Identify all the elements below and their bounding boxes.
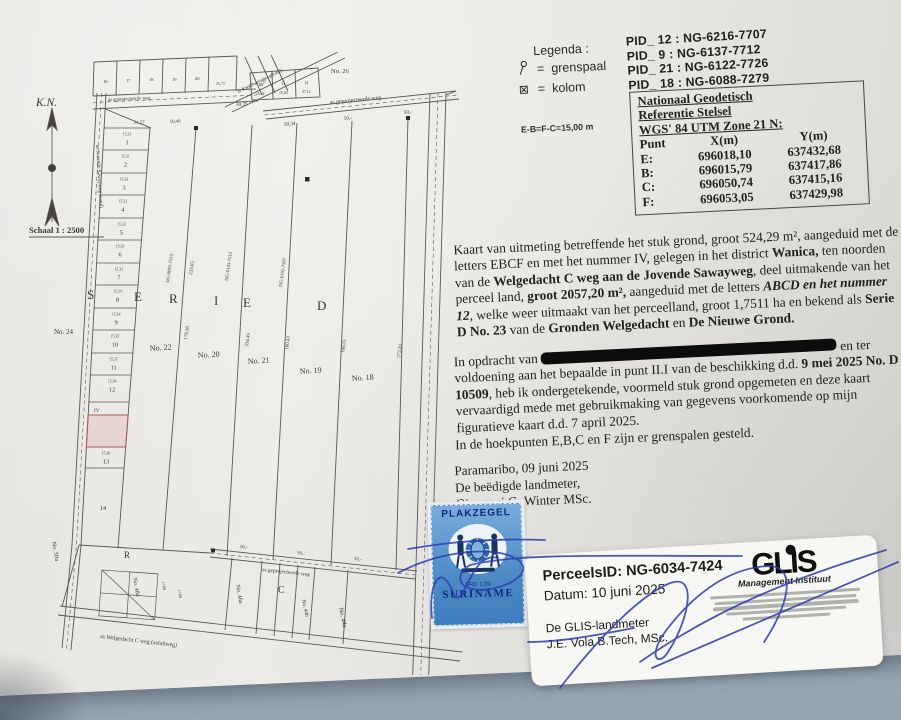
road-label-geprojecteerde-top-left: as geprojecteerde weg [108, 96, 151, 103]
big-letter: D [317, 298, 326, 313]
dimension-label: 15,34 [112, 313, 121, 318]
parcel-label-no24: No. 24 [54, 328, 74, 336]
cell-punt: F: [642, 193, 679, 209]
dimension-label: 16,02 [256, 92, 265, 97]
dimension-label: 50,- [404, 109, 413, 116]
dimension-label: 15,33 [116, 245, 125, 250]
parcel-number: 12 [109, 387, 115, 394]
parcel-number: 8 [116, 297, 119, 304]
cell-y: 637429,98 [775, 185, 858, 203]
dimension-label: 15,36 [108, 380, 117, 385]
dimension-label: 15,35 [109, 358, 118, 363]
big-letter: I [214, 293, 218, 308]
bottom-label: C [278, 585, 285, 596]
coordinate-table: Nationaal Geodetisch Referentie Stelsel … [629, 80, 870, 216]
plakzegel-stamp: PLAKZEGEL SRD 1,00 SURINAME [427, 500, 528, 630]
pid-list: PID_ 12 : NG-6216-7707 PID_ 9 : NG-6137-… [626, 23, 829, 92]
road-label-welgedacht: as Welgedacht C weg (asfaltweg) [100, 633, 178, 649]
parcel-number: 10 [112, 342, 118, 349]
dimension-label: 50,- [240, 545, 248, 551]
parcel-label: No. 19 [300, 365, 322, 375]
dimension-label: 50,46 [170, 119, 182, 125]
highlight-roman-label: IV [94, 408, 100, 414]
highlighted-parcel [86, 415, 128, 447]
parcel-label: No. 18 [352, 372, 374, 382]
bottom-label: No. 44a [337, 607, 348, 628]
big-letter: S [87, 287, 94, 302]
survey-description-paragraph: Kaart van uitmeting betreffende het stuk… [453, 224, 901, 341]
legend-eq: = [538, 81, 546, 95]
parcel-label: No. 22 [150, 342, 172, 352]
parcel-number: 11 [281, 81, 286, 86]
dimension-label: 17,08 [176, 589, 182, 598]
parcel-number: 19 [172, 77, 177, 82]
road-label-geprojecteerde-bottom: as geprojecteerde weg [262, 567, 311, 578]
parcel-number: 5 [120, 230, 123, 237]
dimension-label: 17,08 [160, 581, 166, 590]
document-photo: K.N. Schaal 1 : 2500 as Jovende Sawayweg… [0, 0, 901, 720]
north-label: K.N. [35, 97, 57, 109]
dimension-label: 50,- [344, 115, 353, 122]
dimension-label: 15,34 [113, 290, 122, 295]
dimension-label: 15,36 [102, 452, 111, 457]
dimension-label: 15,32 [118, 200, 127, 205]
parcel-number: 18 [149, 77, 154, 82]
scale-label: Schaal 1 : 2500 [29, 225, 84, 235]
bottom-label: No. 44b [300, 599, 310, 618]
dimension-label: 51,57 [134, 120, 146, 126]
dimension-label: 15,35 [111, 335, 120, 340]
parcel-number: 13 [103, 459, 109, 466]
parcel-number: 20 [195, 76, 200, 81]
kolom-icon: ⊠ [517, 82, 532, 97]
dimension-label: 15,32 [120, 178, 129, 183]
big-letter: R [169, 291, 178, 306]
dimension-label: 372,20 [397, 343, 404, 358]
dimension-label: 334,49 [245, 332, 252, 347]
pink-parcel-id: NG-6192-7507 [279, 257, 288, 287]
suriname-coat-of-arms [437, 518, 517, 582]
dimension-label: 178,38 [184, 325, 191, 340]
bottom-label: No. 46a [234, 584, 243, 604]
parcel-number: 9 [115, 320, 118, 327]
parcel-number: 11 [111, 365, 117, 372]
pink-parcel-id: NG-6091-7512 [166, 253, 175, 283]
parcel-number: 4 [121, 207, 124, 214]
parcel-number: 12 [304, 80, 309, 85]
road-label-geprojecteerde-top-right: as geprojecteerde weg [330, 95, 382, 106]
parcel-number: 1 [125, 140, 128, 147]
glis-logo: GLIS Management Instituut [703, 543, 867, 622]
dimension-label: 15,33 [115, 268, 124, 273]
big-letter: E [243, 295, 251, 310]
dimension-label: 15,30 [279, 91, 288, 96]
dimension-label: 50,- [354, 557, 362, 563]
cadastral-map: K.N. Schaal 1 : 2500 as Jovende Sawayweg… [25, 40, 470, 675]
legend-label-kolom: kolom [552, 79, 586, 94]
dimension-label: 15,33 [117, 223, 126, 228]
legend-label-grenspaal: grenspaal [551, 58, 606, 74]
parcel-number: 14 [100, 505, 106, 512]
dimension-label: 160,43 [285, 335, 292, 350]
parcel-number: 16 [103, 79, 108, 84]
parcel-label: No. 21 [248, 355, 270, 365]
dimension-label: 15,31 [121, 155, 130, 160]
grenspaal-icon [516, 60, 531, 79]
stamp-country: SURINAME [442, 587, 514, 601]
dimension-label: 15,31 [123, 133, 132, 138]
dimension-label: 25,75 [216, 81, 226, 87]
dimension-label: 50,34 [284, 121, 297, 128]
glis-card: PerceelsID: NG-6034-7424 Datum: 10 juni … [524, 535, 883, 687]
bottom-label: No. 48a [131, 577, 140, 597]
glis-logo-text: GLIS [750, 546, 816, 580]
dimension-label: 50,- [297, 551, 305, 557]
parcel-number: 3 [122, 185, 125, 192]
parcel-label: No. 20 [198, 349, 220, 359]
pink-parcel-id: NG-6143-7512 [225, 251, 234, 281]
dimension-label: 166,31 [341, 338, 348, 353]
parcel-number: 2 [124, 162, 127, 169]
big-letter: E [134, 289, 142, 304]
parcel-label-no26: No. 26 [331, 68, 349, 75]
dimension-label: 47,12 [302, 90, 311, 95]
parcel-label-no50a: No. 50a [50, 541, 60, 562]
parcel-number: 7 [117, 275, 120, 282]
fine-print-lines [705, 587, 866, 622]
legend-eq: = [537, 61, 545, 75]
parcel-number: 6 [118, 252, 121, 259]
parcel-number: 17 [126, 78, 131, 83]
dimension-label: 229,65 [189, 260, 196, 275]
dimension-label: 50,35 [236, 101, 248, 108]
bottom-label: R [124, 550, 130, 560]
